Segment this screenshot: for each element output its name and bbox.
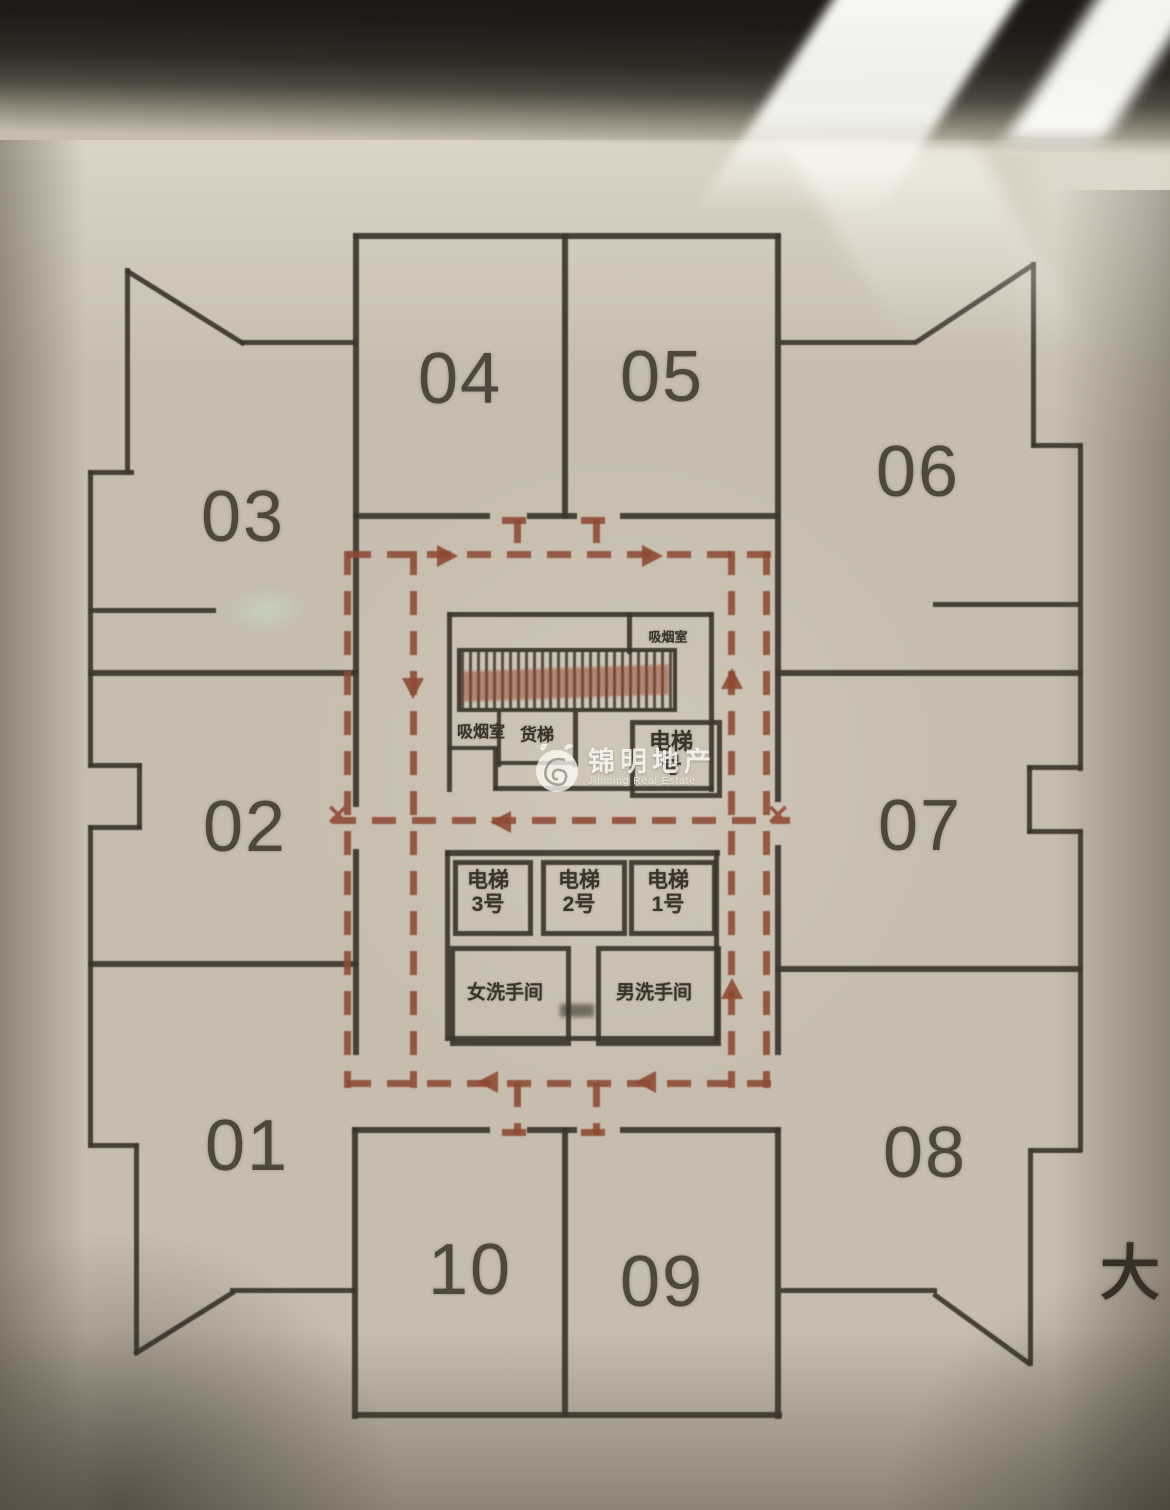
unit-label-09: 09: [620, 1246, 704, 1318]
route-arrow: [721, 978, 743, 999]
route-dash: [332, 817, 790, 824]
route-arrow: [437, 545, 458, 567]
unit-label-08: 08: [883, 1117, 967, 1189]
floor-plan-photo: ×× 01 02 03 04 05 06 07 08 09 10 吸烟室 吸烟室…: [0, 0, 1170, 1510]
light-glare-right-glow: [1030, 150, 1170, 450]
unit-label-10: 10: [428, 1234, 512, 1306]
watermark-logo-icon: [532, 742, 582, 794]
route-arrow: [642, 545, 663, 567]
smoking-room-left-label: 吸烟室: [457, 718, 505, 742]
shaft-tiny-label-smudge: [560, 1004, 594, 1017]
elevator-3-label-line1: 电梯: [467, 869, 509, 893]
unit-label-02: 02: [203, 791, 287, 863]
elevator-2-label-line2: 2号: [558, 893, 600, 917]
glass-reflection-smudge: [225, 586, 307, 634]
route-dash: [410, 551, 417, 1088]
unit-label-05: 05: [620, 341, 704, 413]
restroom-women-label: 女洗手间: [467, 978, 543, 1005]
route-arrow: [635, 1071, 656, 1093]
unit-label-03: 03: [201, 481, 285, 553]
watermark-brand-en: Jinming Real Estate: [588, 776, 696, 788]
watermark-brand-cn: 锦明地产: [588, 748, 716, 776]
elevator-2-label-line1: 电梯: [558, 869, 600, 893]
route-arrow: [402, 678, 424, 699]
smoking-room-top-label: 吸烟室: [648, 627, 687, 646]
unit-label-04: 04: [418, 343, 502, 415]
route-arrow: [490, 811, 511, 833]
elevator-1-label-line2: 1号: [647, 893, 689, 917]
unit-label-07: 07: [878, 790, 962, 862]
route-junction-mark: ×: [765, 800, 790, 830]
unit-label-01: 01: [205, 1110, 289, 1182]
elevator-1-label-line1: 电梯: [647, 869, 689, 893]
unit-label-06: 06: [876, 436, 960, 508]
route-dash: [514, 1083, 521, 1135]
elevator-3-label-line2: 3号: [467, 893, 509, 917]
route-dash: [593, 1083, 600, 1135]
restroom-men-label: 男洗手间: [616, 978, 692, 1005]
route-junction-mark: ×: [325, 800, 350, 830]
route-arrow: [721, 668, 743, 689]
route-dash: [514, 519, 521, 559]
route-dash: [593, 519, 600, 559]
route-arrow: [477, 1071, 498, 1093]
route-dash: [728, 551, 735, 1088]
watermark: 锦明地产 Jinming Real Estate: [532, 742, 716, 794]
